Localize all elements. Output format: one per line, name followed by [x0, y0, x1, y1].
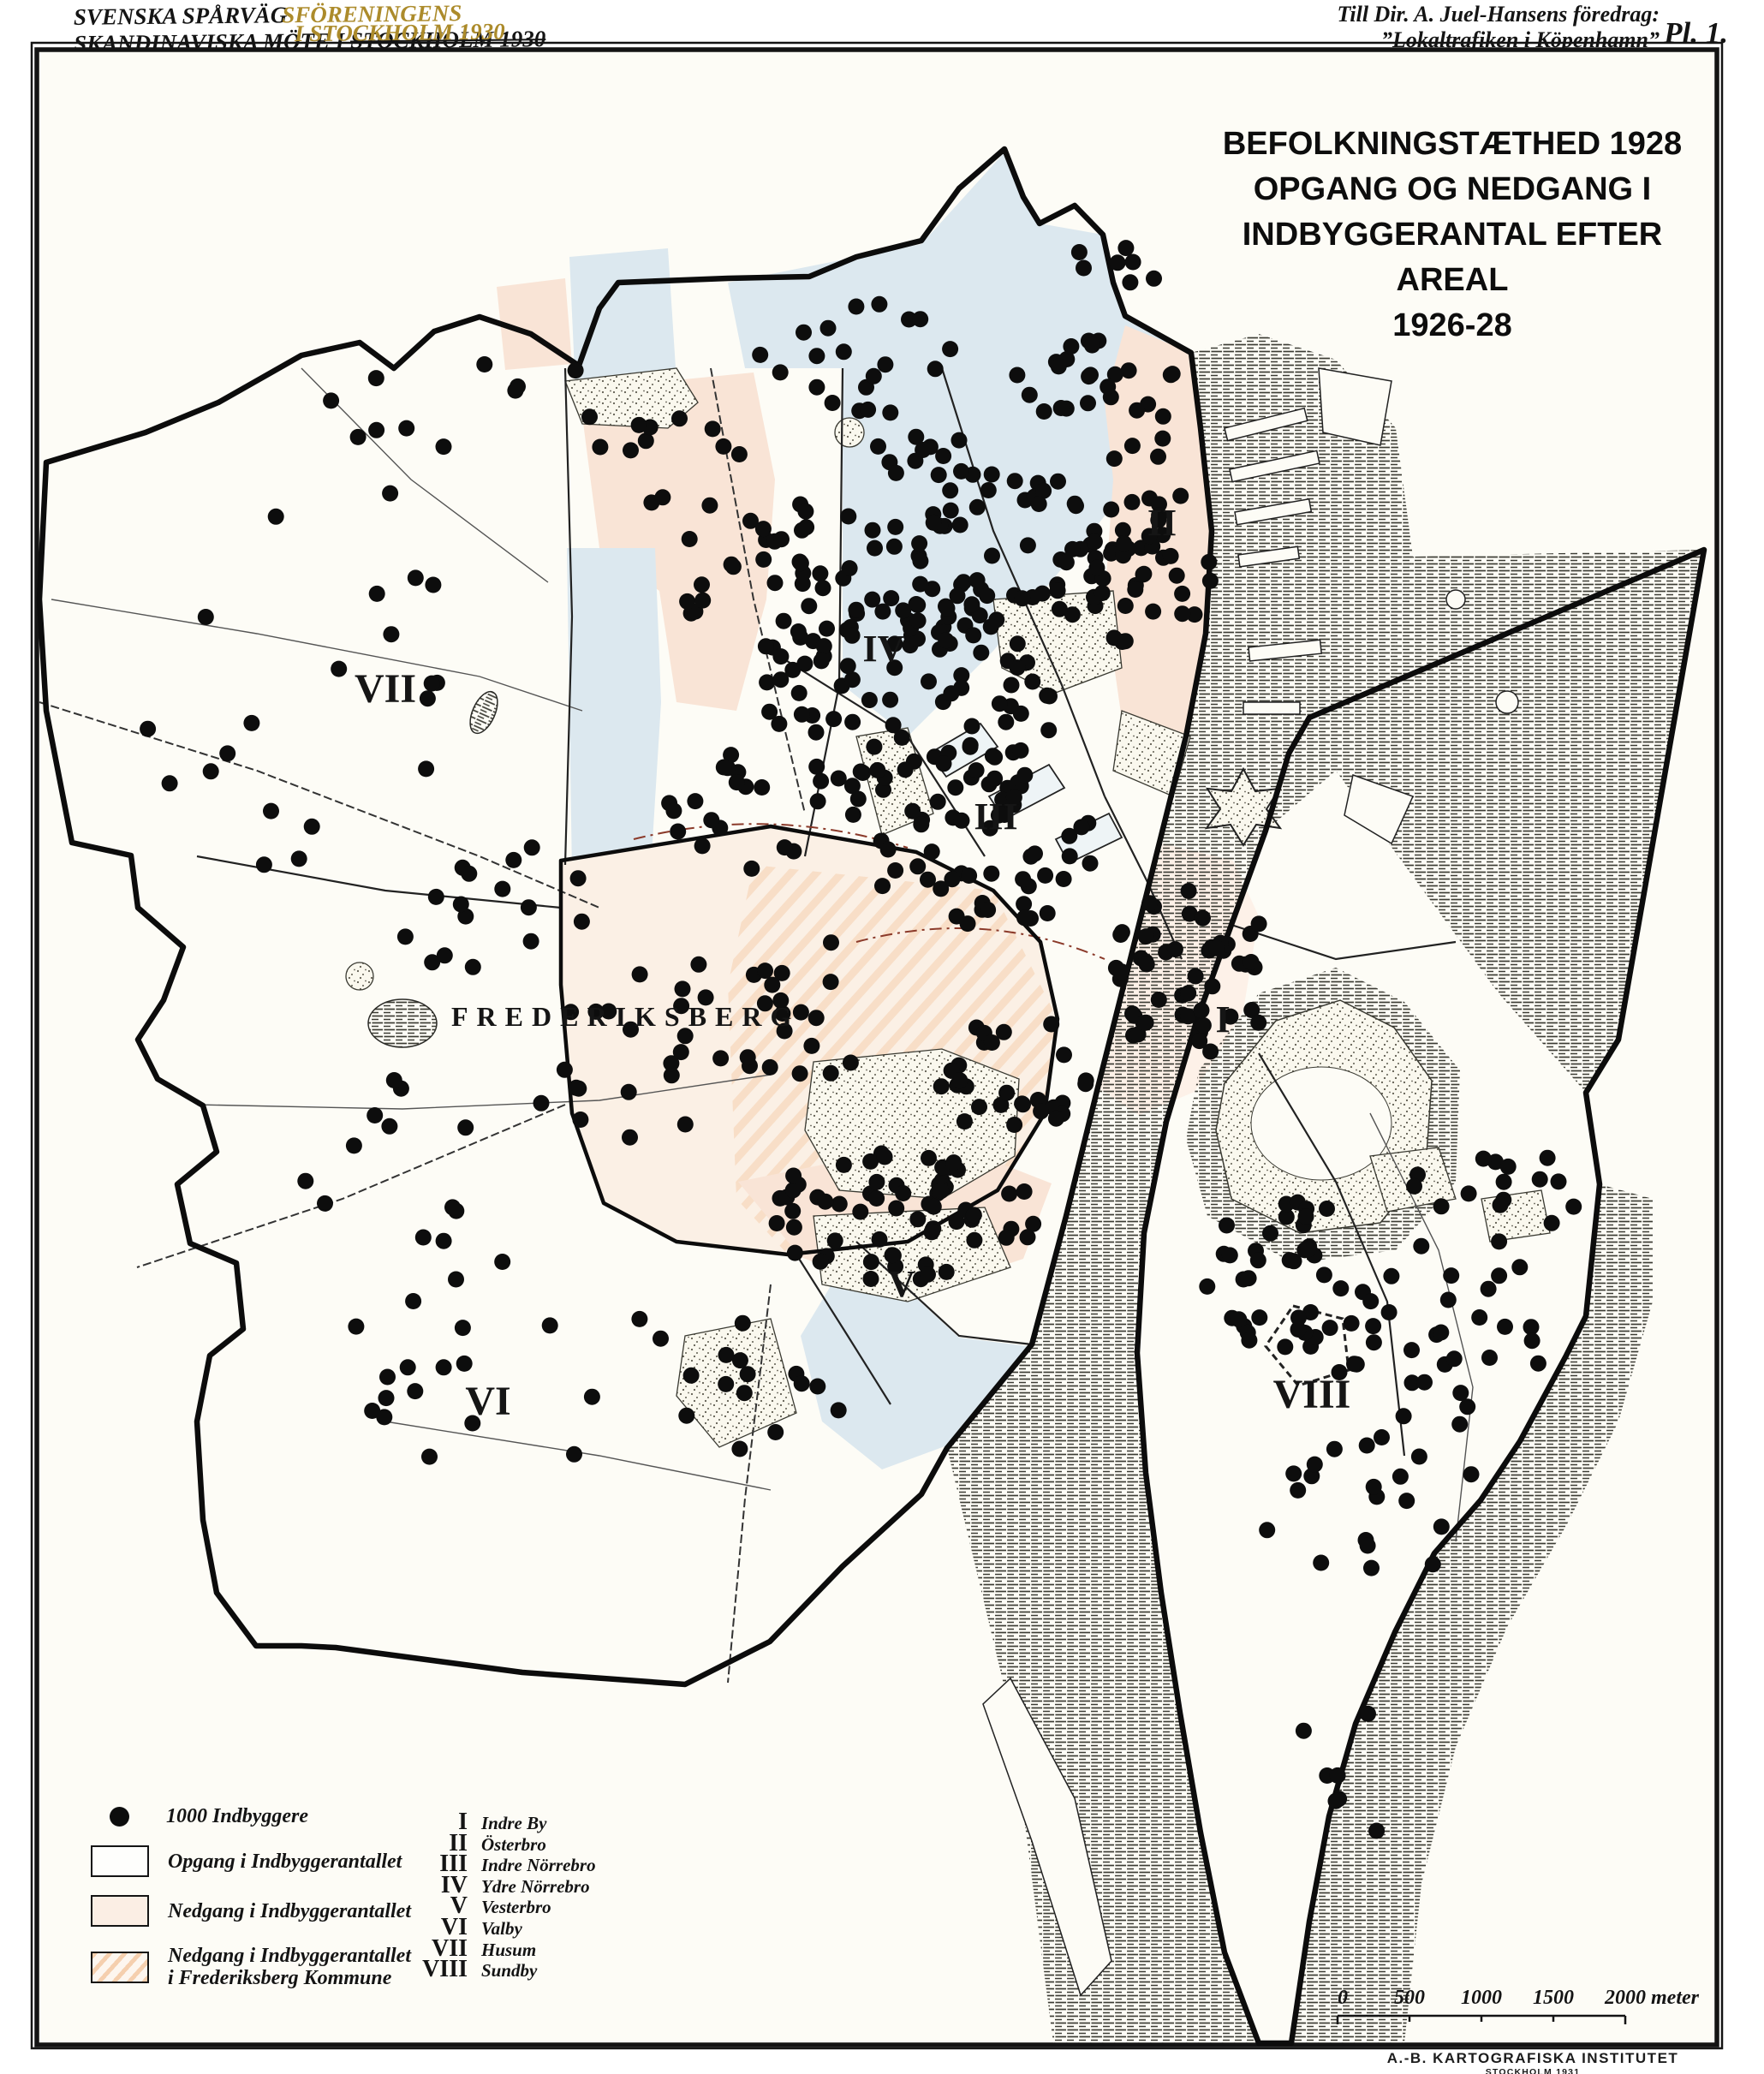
population-dot [1056, 1046, 1072, 1063]
population-dot [1208, 940, 1225, 957]
map-label-i: I [1215, 998, 1230, 1040]
population-dot [943, 503, 959, 519]
population-dot [1106, 450, 1123, 467]
population-dot [1481, 1350, 1498, 1366]
population-dot [465, 959, 481, 975]
population-dot [436, 1233, 452, 1249]
population-dot [1024, 674, 1040, 690]
legend-swatch [91, 1895, 149, 1927]
population-dot [1259, 1522, 1275, 1538]
population-dot [986, 771, 1003, 787]
population-dot [1016, 909, 1033, 926]
population-dot [868, 1190, 885, 1207]
district-key-name: Valby [481, 1918, 522, 1940]
population-dot [1181, 883, 1197, 899]
population-dot [400, 1359, 416, 1375]
population-dot [1491, 1233, 1507, 1249]
population-dot [1296, 1723, 1312, 1739]
population-dot [1064, 541, 1081, 557]
population-dot [831, 1402, 847, 1418]
christianshavn-core [1251, 1067, 1392, 1180]
population-dot [382, 486, 398, 502]
district-key-row: VIIISundby [408, 1959, 596, 1981]
legend-swatch [91, 1952, 149, 1983]
population-dot [845, 807, 861, 823]
population-dot [808, 724, 825, 741]
population-dot [1406, 1178, 1422, 1195]
population-dot [1014, 590, 1030, 606]
map-label-iv: IV [863, 628, 905, 670]
population-dot [1195, 910, 1211, 927]
population-dot [740, 1049, 756, 1065]
population-dot [784, 1203, 801, 1219]
population-dot [1199, 1278, 1215, 1295]
population-dot [694, 576, 710, 593]
population-dot [921, 673, 937, 689]
population-dot [823, 974, 839, 990]
scale-unit-label: meter [1651, 1987, 1700, 2009]
population-dot [864, 592, 880, 608]
population-dot [794, 706, 810, 723]
population-dot [1262, 1225, 1278, 1242]
population-dot [1530, 1356, 1546, 1372]
imprint: A.-B. KARTOGRAFISKA INSTITUTET STOCKHOLM… [1336, 2050, 1730, 2074]
population-dot [378, 1390, 395, 1406]
population-dot [816, 638, 832, 654]
population-dot [836, 1157, 852, 1173]
population-dot [823, 934, 839, 951]
scale-tick-label: 1500 [1533, 1987, 1574, 2009]
population-dot [1540, 1150, 1556, 1166]
population-dot [1243, 954, 1260, 970]
population-dot [1346, 1356, 1362, 1372]
population-dot [140, 721, 156, 737]
population-dot [566, 1446, 582, 1463]
population-dot [1459, 1398, 1475, 1415]
population-dot [679, 593, 695, 610]
population-dot [951, 1072, 968, 1088]
population-dot [861, 692, 878, 708]
population-dot [964, 718, 980, 735]
population-dot [268, 509, 284, 525]
header-right: Till Dir. A. Juel-Hansens föredrag: ”Lok… [1337, 2, 1660, 53]
population-dot [966, 1207, 982, 1223]
population-dot [1174, 586, 1190, 602]
population-dot [943, 685, 959, 701]
population-dot [786, 1219, 802, 1236]
population-dot [724, 557, 740, 573]
population-dot [866, 368, 882, 384]
population-dot [1392, 1469, 1409, 1485]
population-dot [1009, 367, 1025, 384]
population-dot [772, 648, 789, 665]
header-right-line1: Till Dir. A. Juel-Hansens föredrag: [1337, 2, 1660, 27]
population-dot [952, 517, 968, 533]
population-dot [1124, 494, 1141, 510]
population-dot [1154, 431, 1171, 447]
population-dot [457, 1119, 474, 1135]
population-dot [868, 1174, 885, 1190]
population-dot [844, 714, 861, 730]
population-dot [263, 803, 279, 819]
population-dot [1020, 1229, 1036, 1245]
population-dot [825, 395, 841, 411]
population-dot [771, 716, 787, 732]
population-dot [966, 1232, 982, 1249]
population-dot [1004, 677, 1020, 694]
population-dot [1081, 368, 1097, 384]
population-dot [801, 598, 817, 614]
population-dot [675, 980, 691, 997]
header-left-line1-black: SVENSKA SPÅRVÄG [74, 2, 288, 30]
population-dot [842, 560, 858, 576]
map-title-line3: INDBYGGERANTAL EFTER AREAL [1197, 212, 1707, 303]
population-dot [1300, 1242, 1316, 1258]
population-dot [886, 539, 903, 555]
population-dot [980, 902, 996, 918]
population-dot [1014, 1095, 1030, 1111]
population-dot [1195, 1017, 1212, 1034]
population-dot [1094, 585, 1111, 601]
population-dot [436, 438, 452, 455]
population-dot [1551, 1173, 1567, 1189]
population-dot [1169, 568, 1185, 584]
population-dot [1010, 659, 1026, 676]
population-dot [969, 572, 986, 588]
population-dot [758, 638, 774, 654]
population-dot [455, 1320, 471, 1336]
population-dot [1112, 927, 1129, 943]
population-dot [960, 915, 976, 932]
population-dot [877, 1149, 893, 1165]
population-dot [1532, 1171, 1548, 1188]
population-dot [810, 793, 826, 809]
district-key: IIndre ByIIÖsterbroIIIIndre NörrebroIVYd… [408, 1812, 596, 1981]
population-dot [1360, 1538, 1376, 1554]
population-dot [584, 1389, 600, 1405]
population-dot [1163, 367, 1179, 383]
population-dot [1141, 895, 1158, 911]
population-dot [383, 626, 399, 642]
population-dot [1135, 566, 1152, 582]
population-dot [774, 965, 790, 981]
population-dot [1073, 819, 1089, 835]
population-dot [953, 463, 969, 480]
population-dot [654, 489, 670, 505]
population-dot [1117, 633, 1134, 649]
district-key-name: Husum [481, 1940, 536, 1961]
population-dot [926, 515, 942, 531]
population-dot [1013, 706, 1029, 722]
population-dot-icon [110, 1807, 129, 1827]
population-dot [1433, 1518, 1450, 1535]
population-dot [317, 1195, 333, 1212]
population-dot [1452, 1385, 1469, 1401]
population-dot [574, 914, 590, 930]
map-label-v: V [888, 1263, 915, 1305]
legend-dot-row: 1000 Indbyggere [91, 1805, 411, 1827]
population-dot [819, 621, 835, 637]
population-dot [1037, 867, 1053, 884]
population-dot [961, 867, 977, 884]
population-dot [1127, 581, 1143, 598]
population-dot [1544, 1215, 1560, 1231]
population-dot [461, 866, 477, 882]
population-dot [436, 1359, 452, 1375]
population-dot [992, 695, 1008, 712]
population-dot [407, 1383, 423, 1399]
population-dot [1084, 337, 1100, 354]
population-dot [933, 1183, 949, 1199]
population-dot [683, 1368, 700, 1384]
population-dot [367, 1107, 383, 1123]
population-dot [682, 531, 698, 547]
population-dot [1374, 1429, 1390, 1445]
population-dot [1033, 1103, 1049, 1119]
population-dot [984, 548, 1000, 564]
population-dot [1396, 1408, 1412, 1424]
population-dot [1007, 473, 1023, 489]
population-dot [1219, 1218, 1235, 1234]
population-dot [1155, 408, 1171, 425]
population-dot [813, 1254, 829, 1270]
population-dot [1088, 560, 1105, 576]
population-dot [731, 446, 748, 462]
population-dot [755, 551, 772, 568]
population-dot [1383, 1268, 1399, 1284]
population-dot [1016, 767, 1033, 784]
legend-item: Nedgang i Indbyggerantalleti Frederiksbe… [91, 1945, 411, 1989]
population-dot [581, 408, 598, 425]
population-dot [936, 755, 952, 772]
population-dot [912, 576, 928, 593]
population-dot [398, 420, 414, 437]
population-dot [523, 933, 539, 950]
population-dot [1001, 1186, 1017, 1202]
population-dot [1146, 271, 1162, 287]
population-dot [794, 1375, 810, 1392]
population-dot [670, 824, 686, 840]
population-dot [408, 569, 424, 586]
population-dot [942, 482, 958, 498]
population-dot [653, 1331, 669, 1347]
population-dot [729, 774, 745, 790]
population-dot [871, 296, 887, 313]
population-dot [1381, 1304, 1397, 1320]
population-dot [938, 632, 954, 648]
population-dot [291, 850, 307, 867]
population-dot [677, 1117, 694, 1133]
population-dot [877, 356, 893, 372]
population-dot [663, 1055, 679, 1071]
population-dot [243, 715, 259, 731]
legend-item: Nedgang i Indbyggerantallet [91, 1895, 411, 1927]
header-left: SVENSKA SPÅRVÄGSFÖRENINGENS SKANDINAVISK… [74, 0, 546, 57]
population-dot [853, 764, 869, 780]
population-dot [944, 871, 960, 887]
population-dot [1285, 1465, 1302, 1481]
population-dot [803, 1038, 819, 1054]
population-dot [1056, 871, 1072, 887]
population-dot [678, 1408, 694, 1424]
map-title-line2: OPGANG OG NEDGANG I [1197, 167, 1707, 212]
population-dot [954, 813, 970, 829]
population-dot [996, 1024, 1012, 1040]
population-dot [791, 685, 808, 701]
population-dot [1365, 1318, 1381, 1334]
population-dot [882, 692, 898, 708]
population-dot [425, 577, 441, 593]
population-dot [1036, 403, 1052, 420]
population-dot [785, 1182, 802, 1198]
legend-item-label: Nedgang i Indbyggerantalleti Frederiksbe… [168, 1945, 411, 1989]
population-dot [867, 540, 883, 557]
population-dot [1080, 395, 1096, 411]
population-dot [1565, 1199, 1582, 1215]
scale-tick-label: 1000 [1461, 1987, 1502, 2009]
population-dot [418, 760, 434, 777]
map-label-viii: VIII [1273, 1372, 1351, 1417]
population-dot [1443, 1267, 1459, 1284]
population-dot [1363, 1560, 1380, 1576]
population-dot [1282, 1252, 1298, 1268]
population-dot [1145, 604, 1161, 620]
population-dot [1471, 1309, 1487, 1326]
population-dot [456, 1356, 473, 1372]
population-dot [1067, 496, 1083, 512]
population-dot [1039, 688, 1055, 704]
population-dot [736, 1385, 753, 1401]
population-dot [533, 1095, 550, 1111]
population-dot [1016, 1183, 1033, 1200]
population-dot [772, 364, 789, 380]
population-dot [808, 379, 825, 396]
population-dot [1524, 1332, 1541, 1349]
population-dot [790, 623, 807, 640]
population-dot [1151, 992, 1167, 1008]
population-dot [510, 378, 526, 395]
population-dot [983, 618, 999, 635]
population-dot [219, 745, 235, 761]
population-dot [703, 812, 719, 828]
population-dot [894, 730, 910, 746]
population-dot [568, 1080, 584, 1096]
population-dot [1326, 1441, 1343, 1457]
population-dot [850, 791, 867, 808]
plate-number: Pl. 1. [1664, 21, 1728, 46]
population-dot [1307, 1457, 1323, 1473]
population-dot [1052, 601, 1068, 617]
population-dot [777, 839, 793, 855]
population-dot [331, 661, 347, 677]
population-dot [998, 714, 1014, 730]
population-dot [836, 343, 852, 360]
population-dot [256, 856, 272, 873]
population-dot [1087, 533, 1103, 550]
population-dot [521, 899, 537, 915]
population-dot [740, 1366, 756, 1382]
population-dot [887, 519, 903, 535]
map-title: BEFOLKNINGSTÆTHED 1928 OPGANG OG NEDGANG… [1197, 122, 1707, 349]
population-dot [1043, 1016, 1059, 1033]
map-label-ii: II [1147, 502, 1177, 544]
population-dot [809, 1379, 825, 1395]
population-dot [694, 593, 711, 609]
population-dot [694, 837, 711, 854]
population-dot [715, 438, 731, 455]
population-dot [1034, 586, 1051, 602]
population-dot [665, 802, 682, 819]
population-dot [1298, 1208, 1314, 1225]
population-dot [863, 1254, 879, 1270]
population-dot [951, 432, 968, 449]
population-dot [631, 1311, 647, 1327]
population-dot [971, 1099, 987, 1115]
population-dot [840, 658, 856, 674]
population-dot [831, 1196, 848, 1213]
population-dot [687, 793, 703, 809]
population-dot [998, 1085, 1015, 1101]
population-dot [1013, 742, 1029, 759]
district-key-name: Österbro [481, 1834, 546, 1856]
map-sheet: SVENSKA SPÅRVÄGSFÖRENINGENS SKANDINAVISK… [0, 0, 1764, 2074]
population-dot [1063, 338, 1079, 355]
population-dot [924, 1224, 940, 1240]
population-dot [1167, 941, 1183, 957]
population-dot [304, 819, 320, 835]
population-dot [1129, 402, 1145, 419]
scale-tick-label: 500 [1394, 1987, 1425, 2009]
population-dot [947, 779, 963, 796]
population-dot [848, 602, 864, 618]
population-dot [622, 1129, 638, 1146]
population-dot [1222, 1247, 1238, 1263]
population-dot [420, 690, 436, 706]
population-dot [865, 522, 881, 539]
population-dot [796, 325, 812, 341]
population-dot [965, 627, 981, 643]
population-dot [368, 370, 384, 386]
population-dot [323, 392, 339, 408]
population-dot [1124, 438, 1141, 454]
population-dot [920, 1266, 936, 1283]
population-dot [863, 1271, 879, 1287]
population-dot [705, 420, 721, 437]
population-dot [880, 842, 897, 858]
population-dot [1328, 1793, 1344, 1809]
population-dot [1313, 1555, 1329, 1571]
population-dot [1497, 1319, 1513, 1335]
population-dot [671, 410, 688, 426]
population-dot [716, 760, 732, 776]
district-key-name: Indre By [481, 1813, 546, 1834]
population-dot [381, 1118, 397, 1135]
population-dot [1330, 1767, 1346, 1784]
park-damhus-green [346, 963, 373, 990]
population-dot [759, 674, 775, 690]
population-dot [297, 1173, 313, 1189]
population-dot [570, 870, 587, 886]
population-dot [1475, 1151, 1492, 1167]
population-dot [825, 711, 842, 727]
population-dot [1188, 968, 1204, 985]
population-dot [787, 1245, 803, 1261]
population-dot [882, 404, 898, 420]
population-dot [1319, 1201, 1335, 1217]
population-dot [912, 311, 928, 327]
population-dot [1116, 535, 1132, 551]
map-title-line1: BEFOLKNINGSTÆTHED 1928 [1197, 122, 1707, 167]
